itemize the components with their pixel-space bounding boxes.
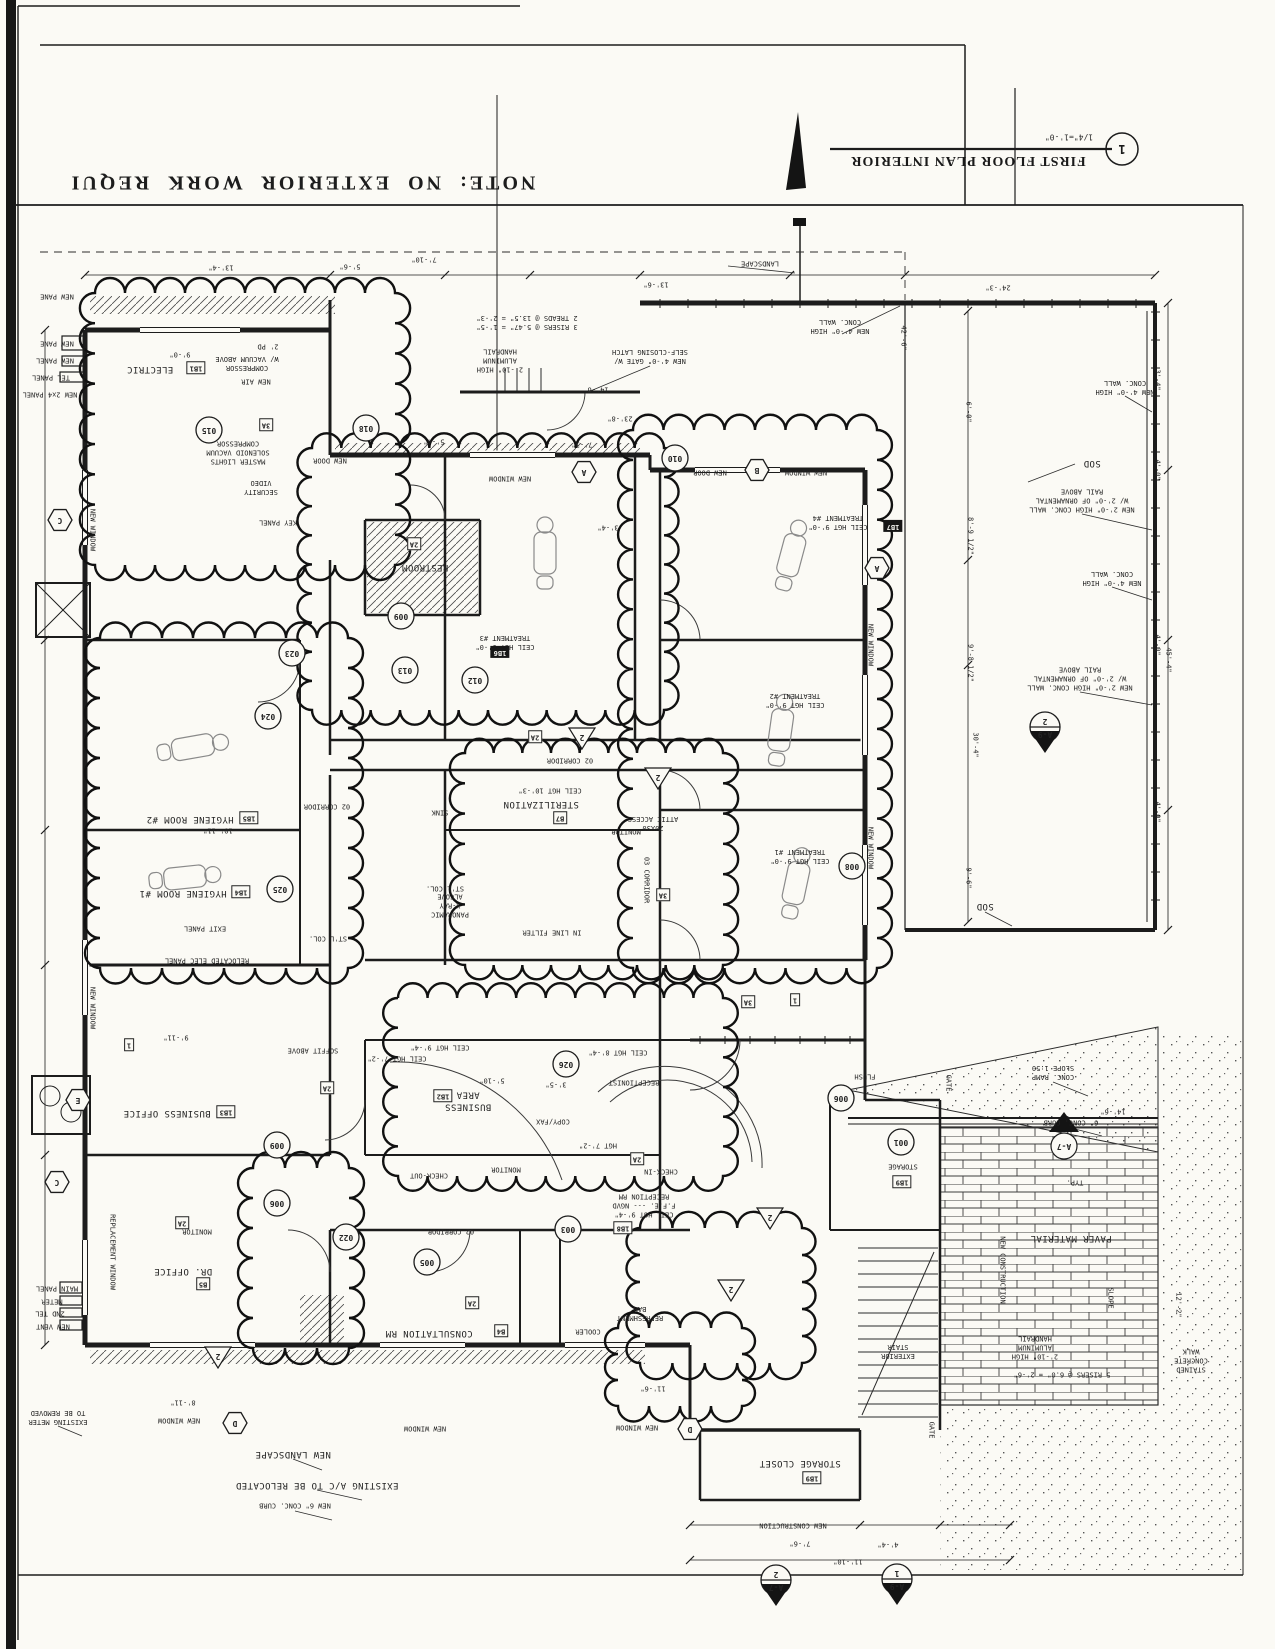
room-tag: 1B9	[893, 1176, 912, 1189]
room-tag: 1B3	[217, 1106, 236, 1119]
plan-label: NEW 4'-0" GATE W/ SELF-CLOSING LATCH	[612, 347, 688, 365]
plan-label: CEIL HGT 9'-4"	[410, 1042, 469, 1051]
keynote-box: 2A	[175, 1217, 189, 1230]
plan-label: 6'-0"	[963, 401, 972, 422]
plan-label: NEW 6" CONC. CURB	[259, 1500, 331, 1509]
window-type-hexagon: A	[875, 563, 880, 573]
section-marker-label: 1	[895, 1568, 900, 1578]
plan-label: 5'-4"	[423, 436, 444, 445]
plan-label: CEIL HGT 9'-0" TREATMENT #4	[808, 513, 867, 531]
detail-callout-circle: 009	[394, 611, 408, 621]
plan-label: CEIL HGT 8'-4"	[588, 1047, 647, 1056]
plan-label: NEW AIR	[241, 376, 271, 385]
plan-label: LANDSCAPE	[741, 258, 779, 267]
keynote-box: 2A	[465, 1297, 479, 1310]
plan-label: MONITOR	[491, 1164, 521, 1173]
plan-label: 23'-8"	[607, 413, 632, 422]
window-type-hexagon: C	[55, 1177, 60, 1187]
plan-label: MASTER LIGHTS SOLENOID VACUUM COMPRESSOR	[206, 438, 269, 465]
detail-callout-circle: 015	[202, 425, 216, 435]
plan-label: 7'-6"	[789, 1538, 810, 1547]
plan-label: CHECK-OUT	[410, 1170, 448, 1179]
plan-label: 8'-11"	[170, 1397, 195, 1406]
detail-callout-circle: 023	[285, 648, 299, 658]
keynote-box: 2A	[320, 1082, 334, 1095]
detail-callout-circle: 006	[834, 1093, 848, 1103]
plan-label: NEW WINDOW	[87, 509, 96, 551]
detail-callout-circle: 018	[359, 423, 373, 433]
plan-label: RELOCATED ELEC PANEL	[165, 955, 249, 964]
revision-triangle: 2	[580, 732, 585, 742]
plan-label: PAVER MATERIAL	[1030, 1231, 1111, 1243]
plan-label: 42'-6"	[898, 325, 907, 350]
plan-label: NEW WINDOW	[489, 473, 531, 482]
plan-label: STORAGE CLOSET	[759, 1456, 840, 1468]
keynote-box: 1	[124, 1039, 134, 1052]
keynote-box: 3A	[741, 996, 755, 1009]
plan-label: NEW PANEL	[36, 355, 74, 364]
plan-label: SOD	[976, 899, 993, 911]
plan-label: HGT 7'-2"	[579, 1140, 617, 1149]
plan-annotations: NOTE: NO EXTERIOR WORK REQUI FIRST FLOOR…	[0, 0, 1275, 1649]
plan-label: ST'L COL.	[309, 933, 347, 942]
plan-label: 02 CORRIDOR	[547, 755, 593, 764]
plan-label: GATE	[943, 1075, 952, 1092]
plan-label: GATE	[926, 1422, 935, 1439]
plan-label: CEIL HGT 10'-3"	[518, 785, 581, 794]
revision-triangle: 2	[768, 1212, 773, 1222]
detail-callout-circle: 026	[559, 1059, 573, 1069]
plan-label: 4'-0"	[1152, 801, 1161, 822]
plan-label: 14'-6"	[583, 384, 608, 393]
detail-callout-circle: 009	[270, 1140, 284, 1150]
plan-label: NEW WINDOW	[87, 987, 96, 1029]
plan-label: NEW DOOR	[313, 455, 347, 464]
window-type-hexagon: B	[755, 465, 760, 475]
detail-callout-circle: 012	[468, 675, 482, 685]
plan-label: NEW WINDOW	[404, 1423, 446, 1432]
window-type-hexagon: D	[233, 1418, 238, 1428]
room-tag: 1B5	[240, 812, 259, 825]
sheet-note: NOTE: NO EXTERIOR WORK REQUI	[69, 171, 536, 194]
plan-label: KEY PANEL	[259, 517, 297, 526]
plan-label: PANORAMIC X-RAY ALCOVE	[431, 891, 469, 918]
plan-label: SOD	[1083, 456, 1100, 468]
detail-callout-circle: 010	[668, 453, 682, 463]
plan-label: 5'-6"	[339, 261, 360, 270]
plan-label: NEW 4'-0" HIGH CONC. WALL	[1095, 378, 1154, 396]
window-type-hexagon: C	[58, 515, 63, 525]
keynote-box: 1	[790, 994, 800, 1007]
section-marker-label: A-7	[769, 1582, 783, 1592]
plan-label: 3'-5"	[545, 1079, 566, 1088]
plan-label: 14'-6"	[1100, 1106, 1125, 1115]
room-tag: 1B2	[434, 1090, 453, 1103]
drawing-scale: 1/4"=1'-0"	[1045, 133, 1093, 142]
plan-label: NEW 4'-0" HIGH CONC. WALL	[1082, 569, 1141, 587]
plan-label: EXTERIOR STAIR	[881, 1342, 915, 1360]
plan-label: CHECK-IN	[644, 1166, 678, 1175]
plan-label: 2'-10" HIGH ALUMINUM HANDRAIL	[1012, 1333, 1058, 1360]
plan-label: 9'-6"	[963, 867, 972, 888]
drawing-title: FIRST FLOOR PLAN INTERIOR	[850, 152, 1085, 168]
plan-label: EXIT PANEL	[184, 923, 226, 932]
plan-label: NEW WINDOW	[785, 467, 827, 476]
plan-label: IN LINE FILTER	[522, 927, 581, 936]
plan-label: RECEPTIONIST	[609, 1077, 660, 1086]
plan-label: CONSULTATION RM	[385, 1326, 472, 1338]
plan-label: METER	[41, 1296, 62, 1305]
plan-label: SLOPE	[1105, 1287, 1114, 1308]
plan-label: 7'-10"	[411, 254, 436, 263]
plan-label: REPLACEMENT WINDOW	[107, 1214, 116, 1290]
window-type-hexagon: A	[582, 467, 587, 477]
plan-label: 3 RISERS @ 5.47" = 1'-5" 2 TREADS @ 13.5…	[476, 313, 577, 331]
section-marker-label: A-9	[1038, 729, 1052, 739]
plan-label: 4'-0"	[1152, 634, 1161, 655]
plan-label: NEW DOOR	[693, 467, 727, 476]
plan-label: HYGIENE ROOM #1	[139, 886, 226, 898]
plan-label: 4'-0"	[1152, 459, 1161, 480]
plan-label: DR. OFFICE	[154, 1264, 212, 1276]
plan-label: NEW 2'-0" HIGH CONC. WALL W/ 2'-0" OF OR…	[1027, 664, 1132, 691]
detail-callout-circle: 024	[261, 711, 275, 721]
plan-label: 02 CORRIDOR	[304, 801, 350, 810]
plan-label: 24'-3"	[985, 282, 1010, 291]
plan-label: 3'-4"	[1152, 369, 1161, 390]
plan-label: 10'-11"	[203, 825, 233, 834]
plan-label: COMPRESSOR W/ VACUUM ABOVE	[215, 354, 278, 372]
detail-callout-circle: 006	[270, 1198, 284, 1208]
detail-number: 1	[1118, 142, 1125, 156]
plan-label: NEW 2x4 PANEL	[23, 389, 78, 398]
plan-label: MAIN PANEL	[36, 1283, 78, 1292]
plan-label: NEW WINDOW	[865, 624, 874, 666]
plan-label: TYP.	[1067, 1177, 1084, 1186]
revision-triangle: 2	[729, 1284, 734, 1294]
plan-label: SINK	[432, 807, 449, 816]
room-tag: B7	[553, 812, 567, 825]
room-tag: 1B6	[491, 646, 510, 658]
plan-label: CEIL HGT 9'-4" F.F.E. --- NGVD RECEPTION…	[612, 1191, 675, 1218]
revision-triangle: 2	[216, 1351, 221, 1361]
plan-label: NEW WINDOW	[616, 1422, 658, 1431]
section-marker-label: A-9	[890, 1581, 904, 1591]
room-tag: 1B9	[803, 1472, 822, 1485]
plan-label: NEW VENT	[36, 1321, 70, 1330]
plan-label: 13'-4"	[208, 262, 233, 271]
plan-label: STORAGE	[888, 1161, 918, 1170]
room-tag: B5	[196, 1278, 210, 1291]
keynote-box: 3A	[656, 889, 670, 902]
plan-label: BUSINESS OFFICE	[123, 1106, 210, 1118]
plan-label: 6" CONC. CURB	[1044, 1117, 1099, 1126]
plan-label: 12'-2"	[1173, 1292, 1182, 1317]
plan-label: NEW 4'-0" HIGH CONC. WALL	[810, 317, 869, 335]
plan-label: 45'-4"	[1163, 647, 1172, 672]
plan-label: MONITOR	[611, 826, 641, 835]
plan-label: 9'-0"	[169, 349, 190, 358]
detail-callout-circle: 013	[398, 665, 412, 675]
detail-callout-circle: 008	[845, 861, 859, 871]
plan-label: FLUSH	[854, 1071, 875, 1080]
plan-label: 13'-6"	[643, 279, 668, 288]
revision-triangle: 2	[656, 772, 661, 782]
plan-label: CEIL HGT 9'-0" TREATMENT #2	[765, 691, 824, 709]
plan-label: NEW 2'-0" HIGH CONC. WALL W/ 2'-0" OF OR…	[1029, 486, 1134, 513]
plan-label: NEW CONSTRUCTION	[997, 1236, 1006, 1303]
plan-label: 11'-6"	[640, 1383, 665, 1392]
plan-label: 02 CORRIDOR	[428, 1226, 474, 1235]
room-tag: 1B7	[884, 520, 903, 532]
plan-label: TEL PANEL	[32, 372, 70, 381]
plan-label: RESTROOM	[402, 560, 449, 572]
plan-label: NEW PANE	[40, 338, 74, 347]
plan-label: 9'-8 1/2"	[965, 644, 974, 682]
plan-label: NEW CONSTRUCTION	[759, 1520, 826, 1529]
keynote-box: 2A	[630, 1153, 644, 1166]
plan-label: 3'-4"	[597, 522, 618, 531]
plan-label: 2'-10" HIGH ALUMINUM HANDRAIL	[477, 346, 523, 373]
section-marker-label: 2	[774, 1569, 779, 1579]
room-tag: 1B4	[232, 886, 251, 899]
plan-label: EXISTING A/C TO BE RELOCATED	[236, 1478, 399, 1490]
detail-callout-circle: 003	[561, 1224, 575, 1234]
plan-label: 03 CORRIDOR	[641, 857, 650, 903]
plan-label: NEW LANDSCAPE	[255, 1447, 331, 1459]
plan-label: REFRESHMENT BAR	[617, 1304, 663, 1322]
window-type-hexagon: D	[688, 1424, 693, 1434]
room-tag: 1B8	[614, 1222, 633, 1235]
plan-label: NEW WINDOW	[158, 1415, 200, 1424]
plan-label: CEIL HGT 9'-0" TREATMENT #1	[770, 847, 829, 865]
detail-callout-circle: 001	[894, 1137, 908, 1147]
keynote-box: 2A	[528, 731, 542, 744]
plan-label: 2' PD	[257, 341, 278, 350]
plan-label: ELECTRIC	[127, 362, 174, 374]
section-marker-label: 2	[1043, 716, 1048, 726]
plan-label: 7'-3"	[571, 439, 592, 448]
plan-label: 5'-10"	[479, 1075, 504, 1084]
plan-label: CONC. RAMP SLOPE 1:50	[1032, 1063, 1074, 1081]
section-marker-label: A-7	[1057, 1141, 1071, 1151]
detail-callout-circle: 022	[339, 1232, 353, 1242]
plan-label: 5 RISERS @ 6.0" = 2'-6"	[1014, 1369, 1111, 1378]
plan-label: COOLER	[575, 1326, 600, 1335]
plan-label: NEW PANE	[40, 291, 74, 300]
detail-callout-circle: 005	[420, 1257, 434, 1267]
window-type-hexagon: E	[76, 1095, 81, 1105]
plan-label: SECURITY VIDEO	[244, 478, 278, 496]
plan-label: STAINED CONCRETE WALK	[1174, 1346, 1208, 1373]
plan-label: EXISTING METER TO BE REMOVED	[28, 1408, 87, 1426]
plan-label: SOFFIT ABOVE	[288, 1045, 339, 1054]
detail-callout-circle: 025	[273, 884, 287, 894]
plan-label: NEW WINDOW	[865, 827, 874, 869]
plan-label: 4'-4"	[877, 1539, 898, 1548]
keynote-box: 3A	[259, 419, 273, 432]
plan-label: 8'-9 1/2"	[965, 517, 974, 555]
plan-label: 2ND TEL	[35, 1308, 65, 1317]
plan-label: COPY/FAX	[536, 1116, 570, 1125]
plan-label: HYGIENE ROOM #2	[146, 812, 233, 824]
scanned-floor-plan-sheet: NOTE: NO EXTERIOR WORK REQUI FIRST FLOOR…	[0, 0, 1275, 1649]
plan-label: 30'-4"	[970, 732, 979, 757]
room-tag: 1B1	[187, 362, 206, 375]
plan-label: CEIL HGT 7'-2"	[367, 1053, 426, 1062]
keynote-box: 2A	[407, 538, 421, 551]
plan-label: 9'-11"	[163, 1032, 188, 1041]
plan-label: 11'-10"	[833, 1556, 863, 1565]
room-tag: B4	[494, 1325, 508, 1338]
plan-label: STERILIZATION	[503, 797, 579, 809]
